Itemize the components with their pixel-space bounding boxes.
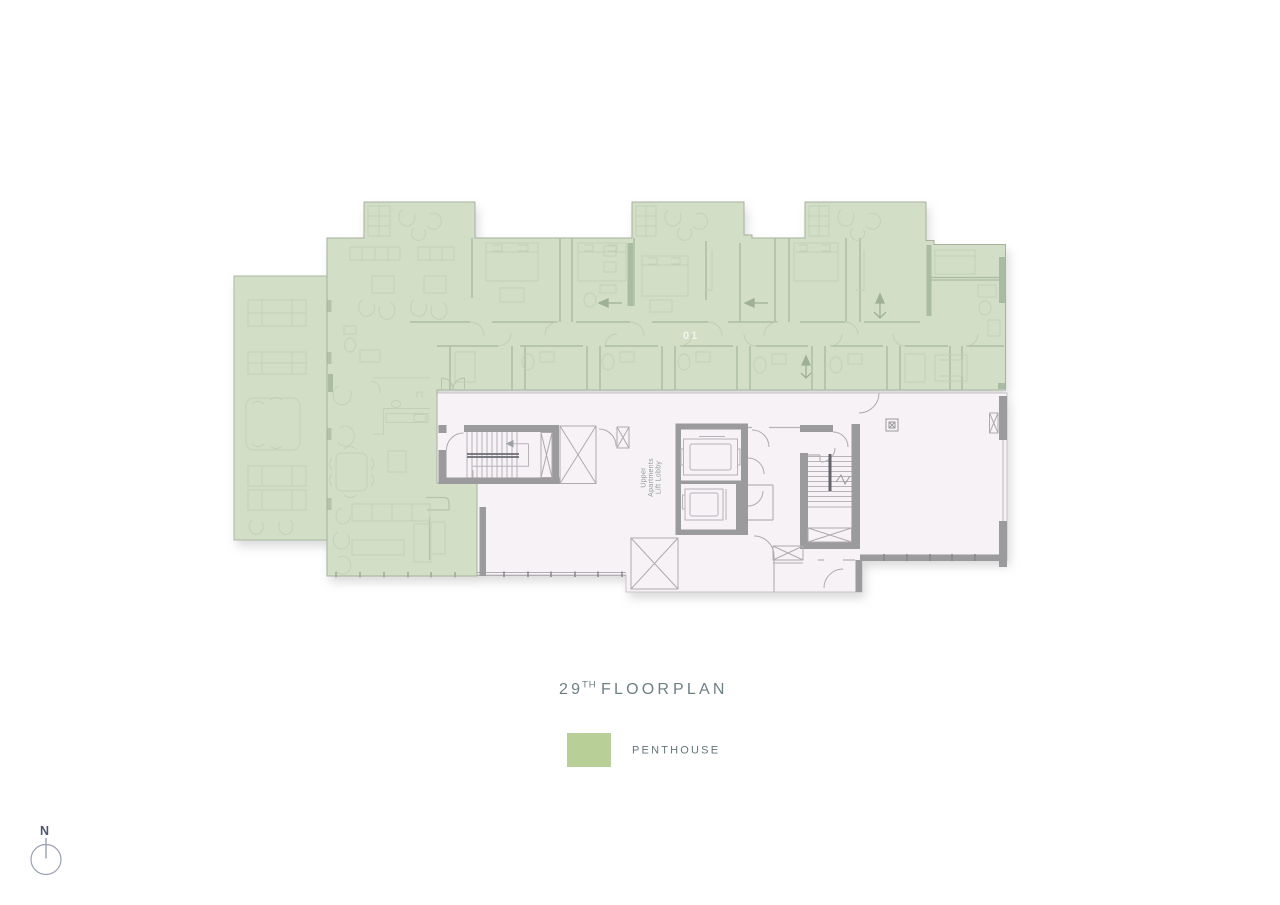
svg-text:29: 29 [559, 681, 583, 698]
svg-text:Apartments: Apartments [648, 458, 655, 497]
svg-text:TH: TH [582, 680, 597, 691]
svg-text:Upper: Upper [641, 467, 648, 488]
svg-text:FLOOR: FLOOR [601, 681, 672, 698]
svg-text:Lift Lobby: Lift Lobby [655, 461, 662, 495]
svg-text:PENTHOUSE: PENTHOUSE [632, 745, 720, 757]
svg-text:PLAN: PLAN [673, 681, 728, 698]
svg-text:01: 01 [683, 330, 699, 342]
svg-text:N: N [40, 824, 49, 838]
